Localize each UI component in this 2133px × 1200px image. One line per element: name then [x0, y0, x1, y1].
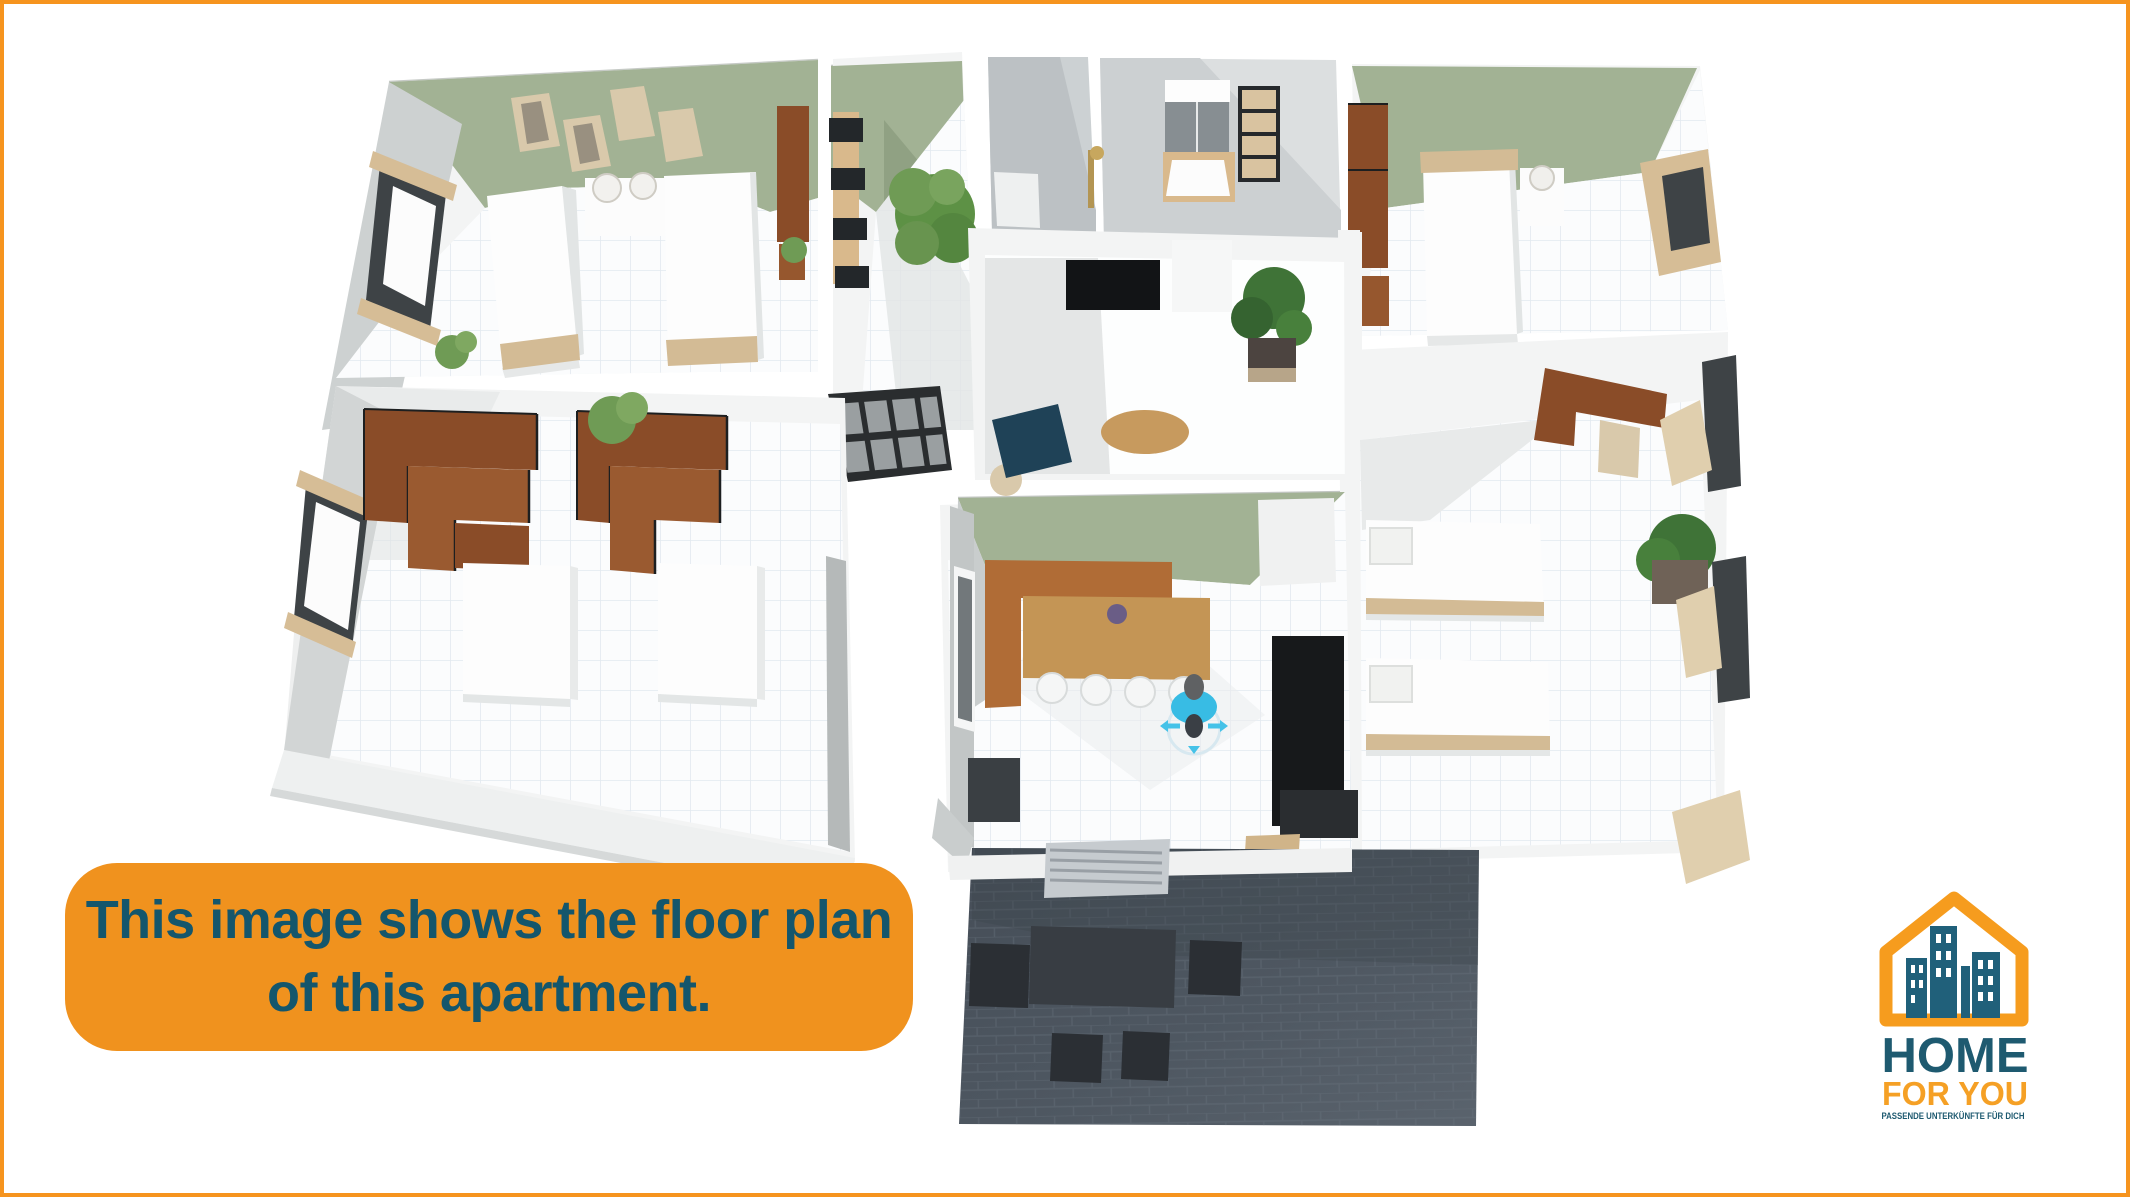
svg-text:PASSENDE UNTERKÜNFTE FÜR DICH: PASSENDE UNTERKÜNFTE FÜR DICH [1882, 1111, 2025, 1122]
svg-text:FOR YOU: FOR YOU [1882, 1075, 2028, 1112]
